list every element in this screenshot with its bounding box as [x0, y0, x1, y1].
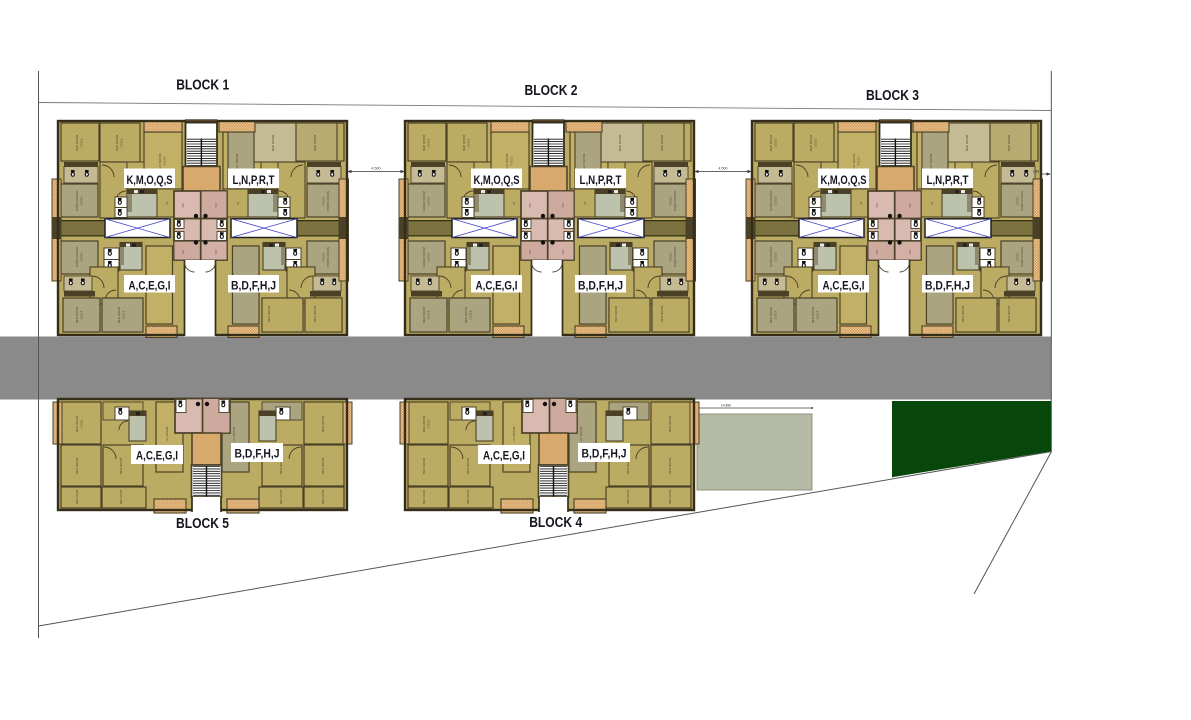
- svg-text:BLOCK 3: BLOCK 3: [866, 88, 919, 104]
- svg-text:BLOCK 2: BLOCK 2: [525, 83, 578, 99]
- svg-text:BLOCK 5: BLOCK 5: [176, 516, 229, 532]
- svg-text:BLOCK 4: BLOCK 4: [529, 515, 582, 531]
- svg-text:4.500: 4.500: [719, 167, 728, 171]
- svg-text:4.500: 4.500: [372, 167, 381, 171]
- svg-text:BLOCK 1: BLOCK 1: [176, 78, 229, 94]
- svg-text:1.80: 1.80: [1033, 170, 1040, 174]
- svg-text:14.890: 14.890: [721, 404, 731, 408]
